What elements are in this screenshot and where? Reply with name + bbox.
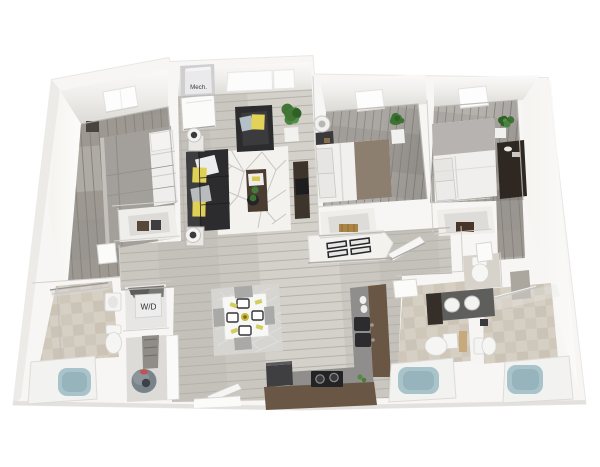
svg-text:Mech.: Mech. — [190, 84, 207, 91]
svg-text:W/D: W/D — [141, 303, 157, 312]
